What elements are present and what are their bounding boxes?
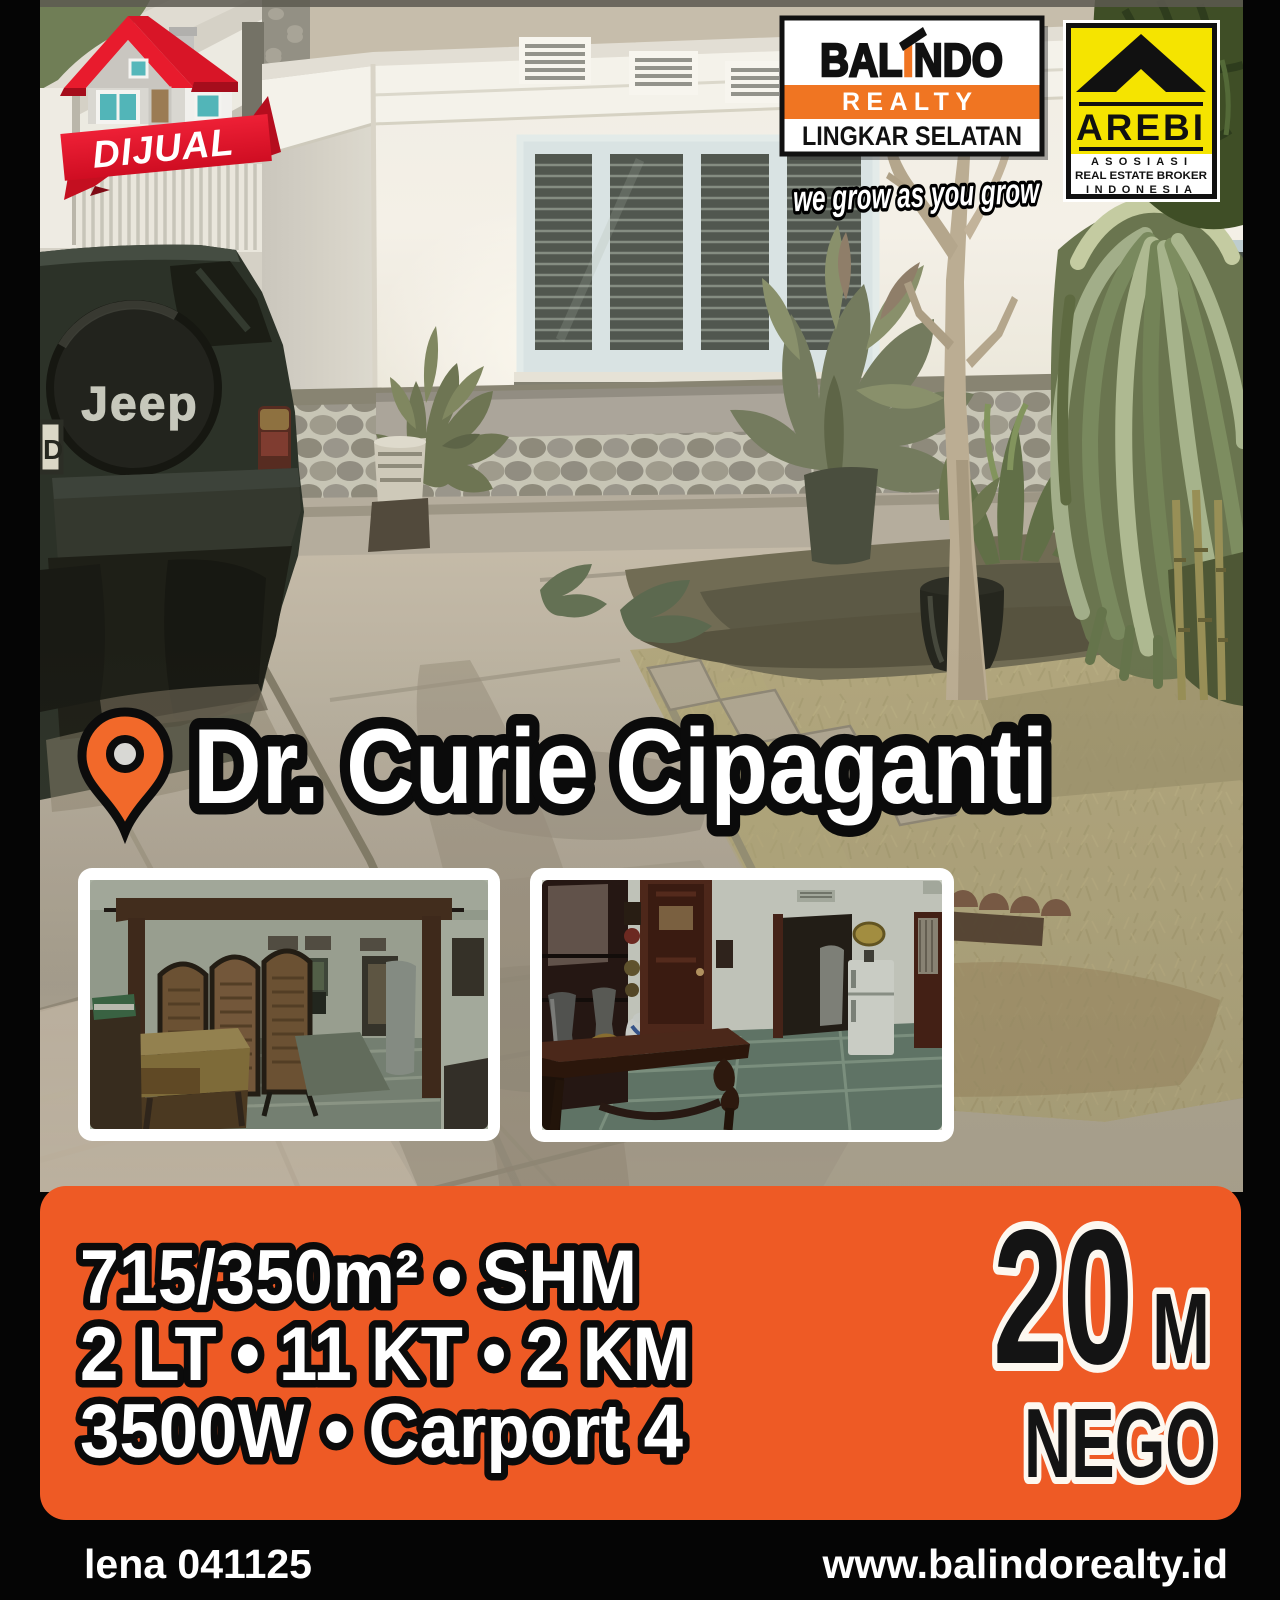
svg-text:AREBI: AREBI [1076,107,1206,148]
svg-text:NEGO: NEGO [1024,1388,1216,1498]
svg-text:we grow as you grow: we grow as you grow [792,170,1041,220]
svg-text:www.balindorealty.id: www.balindorealty.id [822,1541,1229,1587]
svg-text:Dr. Curie Cipaganti: Dr. Curie Cipaganti [193,706,1048,826]
svg-text:ASOSIASI: ASOSIASI [1091,156,1191,168]
svg-text:20: 20 [993,1189,1133,1404]
svg-text:LINGKAR SELATAN: LINGKAR SELATAN [802,121,1022,151]
svg-text:M: M [1152,1273,1210,1385]
svg-text:3500W • Carport 4: 3500W • Carport 4 [80,1389,683,1474]
svg-text:715/350m² • SHM: 715/350m² • SHM [80,1235,637,1320]
svg-text:2 LT • 11 KT • 2 KM: 2 LT • 11 KT • 2 KM [80,1312,690,1397]
svg-text:REAL ESTATE BROKER: REAL ESTATE BROKER [1075,170,1207,182]
svg-text:INDONESIA: INDONESIA [1086,184,1196,196]
svg-text:REALTY: REALTY [842,88,982,116]
svg-text:lena 041125: lena 041125 [84,1541,312,1587]
